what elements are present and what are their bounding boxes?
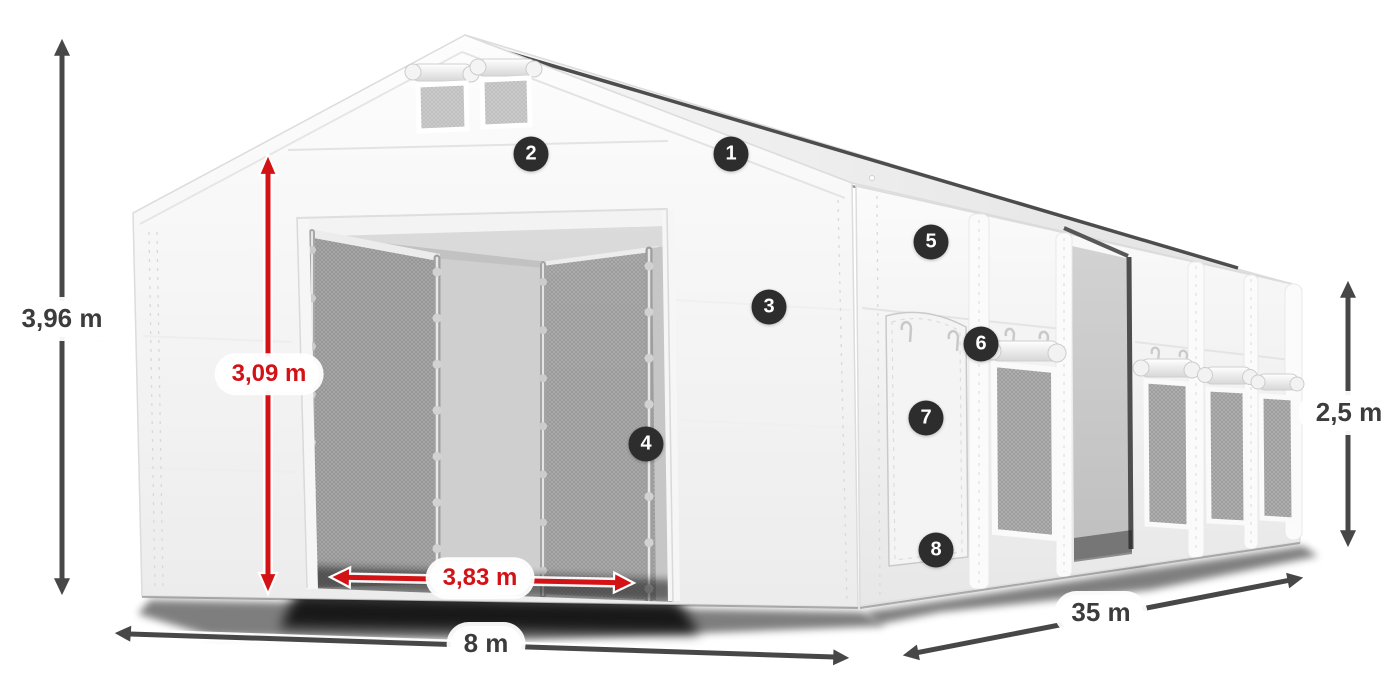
tent-illustration — [0, 0, 1400, 700]
window-3-mesh — [1208, 389, 1246, 523]
middle-opening-pole — [1129, 257, 1131, 549]
vent-window-left — [418, 83, 467, 131]
tent — [133, 35, 1304, 608]
vent-roller-left-cap — [405, 64, 421, 80]
dimension-label-total-height: 3,96 m — [9, 301, 116, 337]
middle-opening — [1064, 228, 1132, 562]
middle-opening-interior — [1072, 246, 1132, 560]
window-2-roll-cap-a — [1133, 360, 1149, 376]
callout-1[interactable]: 1 — [714, 137, 749, 172]
tent-dimension-diagram: 1 2 3 4 5 6 7 8 3,96 m 3,09 m 3,83 m 8 m… — [0, 0, 1400, 700]
vent-roller-right-cap — [470, 59, 486, 75]
partition2-mesh-panel — [542, 252, 656, 600]
jamb-right — [668, 210, 674, 601]
callout-5[interactable]: 5 — [914, 225, 949, 260]
dimension-label-length: 35 m — [1058, 595, 1143, 631]
callout-8[interactable]: 8 — [919, 533, 954, 568]
window-4-roll-cap-b — [1290, 377, 1304, 391]
window-1-roll-cap-b — [1048, 344, 1066, 362]
callout-4[interactable]: 4 — [629, 427, 664, 462]
window-3-roll-cap-a — [1198, 368, 1213, 383]
interior-far-opening — [432, 258, 546, 596]
dimension-label-side-height: 2,5 m — [1303, 395, 1396, 431]
callout-6[interactable]: 6 — [964, 327, 999, 362]
partition1-mesh-panel — [306, 237, 438, 588]
window-4-roll-cap-a — [1251, 375, 1265, 389]
callout-3[interactable]: 3 — [752, 290, 787, 325]
dimension-label-width: 8 m — [451, 626, 522, 662]
side-door — [886, 312, 968, 566]
window-1-mesh — [994, 364, 1055, 538]
callout-2[interactable]: 2 — [514, 137, 549, 172]
corner-grommet — [870, 176, 875, 181]
side-window-1 — [983, 329, 1066, 538]
dimension-label-entrance-height: 3,09 m — [219, 357, 320, 391]
dimension-label-entrance-width: 3,83 m — [430, 561, 531, 595]
callout-7[interactable]: 7 — [909, 401, 944, 436]
window-4-mesh — [1261, 396, 1294, 520]
vent-roller-right-cap2 — [526, 61, 542, 77]
vent-window-right — [482, 78, 530, 127]
front-entrance-interior — [297, 208, 673, 602]
side-door-panel — [886, 312, 968, 566]
window-2-mesh — [1146, 381, 1189, 527]
